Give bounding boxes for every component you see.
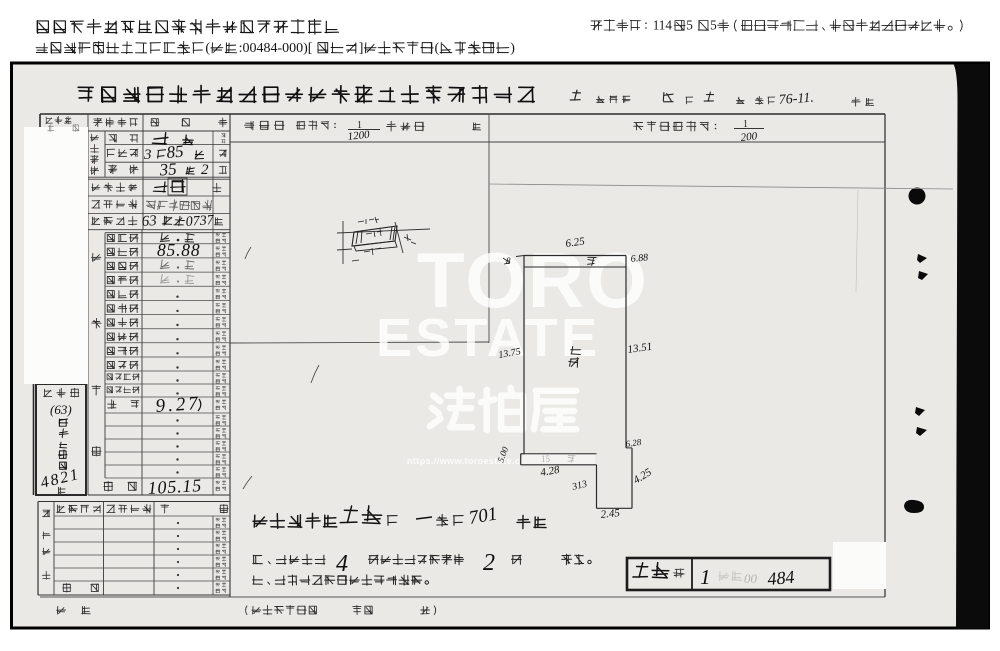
- svg-text:3: 3: [143, 147, 152, 163]
- svg-text:76-11.: 76-11.: [778, 91, 814, 108]
- svg-text:2: 2: [483, 550, 495, 576]
- svg-text:ESTATE: ESTATE: [376, 308, 600, 368]
- svg-text:85.88: 85.88: [157, 240, 200, 260]
- svg-text:35: 35: [158, 159, 177, 179]
- svg-text:63: 63: [141, 213, 157, 230]
- svg-text:105.15: 105.15: [147, 475, 202, 498]
- svg-text:9.27: 9.27: [155, 393, 202, 417]
- svg-text:2.45: 2.45: [600, 507, 621, 521]
- svg-text:1200: 1200: [347, 129, 371, 143]
- svg-text:6.88: 6.88: [630, 252, 649, 265]
- svg-text:1: 1: [700, 565, 711, 589]
- svg-text:15: 15: [541, 454, 551, 464]
- svg-text:484: 484: [767, 567, 796, 589]
- svg-text:5: 5: [686, 18, 693, 33]
- svg-text::00484-000)[: :00484-000)[: [239, 41, 313, 56]
- svg-text:]: ]: [359, 41, 364, 56]
- svg-text:0737: 0737: [185, 213, 215, 230]
- svg-text:(63): (63): [50, 402, 72, 417]
- svg-text:4: 4: [336, 551, 348, 577]
- svg-text:2: 2: [201, 162, 209, 178]
- svg-text:00: 00: [744, 571, 758, 586]
- svg-text:200: 200: [740, 130, 758, 144]
- svg-text:114: 114: [653, 18, 673, 33]
- svg-text:(: (: [205, 41, 210, 56]
- svg-text:): ): [510, 41, 515, 56]
- svg-text:5: 5: [710, 18, 717, 33]
- svg-text:(: (: [435, 41, 440, 56]
